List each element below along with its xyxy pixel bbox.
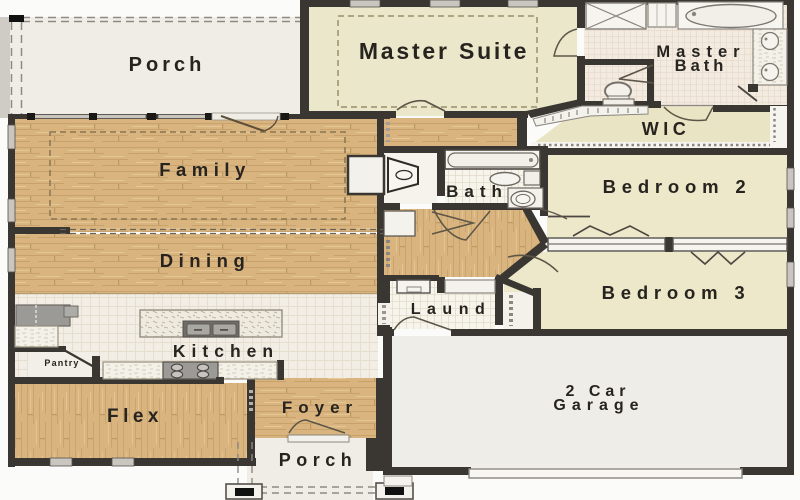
- svg-text:Bath: Bath: [446, 182, 508, 201]
- svg-text:Porch: Porch: [279, 450, 358, 470]
- svg-text:Foyer: Foyer: [282, 398, 358, 417]
- svg-text:Porch: Porch: [129, 54, 206, 76]
- svg-text:Bath: Bath: [675, 57, 728, 75]
- svg-text:Kitchen: Kitchen: [173, 341, 279, 361]
- svg-text:Bedroom 2: Bedroom 2: [603, 176, 752, 197]
- svg-text:Garage: Garage: [553, 397, 644, 414]
- svg-text:Laund: Laund: [411, 301, 492, 318]
- svg-text:Dining: Dining: [160, 250, 251, 271]
- svg-text:Bedroom 3: Bedroom 3: [602, 282, 751, 303]
- svg-text:Master Suite: Master Suite: [359, 38, 529, 64]
- svg-text:WIC: WIC: [642, 119, 691, 139]
- svg-text:Pantry: Pantry: [44, 358, 79, 368]
- svg-text:Flex: Flex: [107, 406, 163, 427]
- svg-text:Family: Family: [159, 159, 251, 180]
